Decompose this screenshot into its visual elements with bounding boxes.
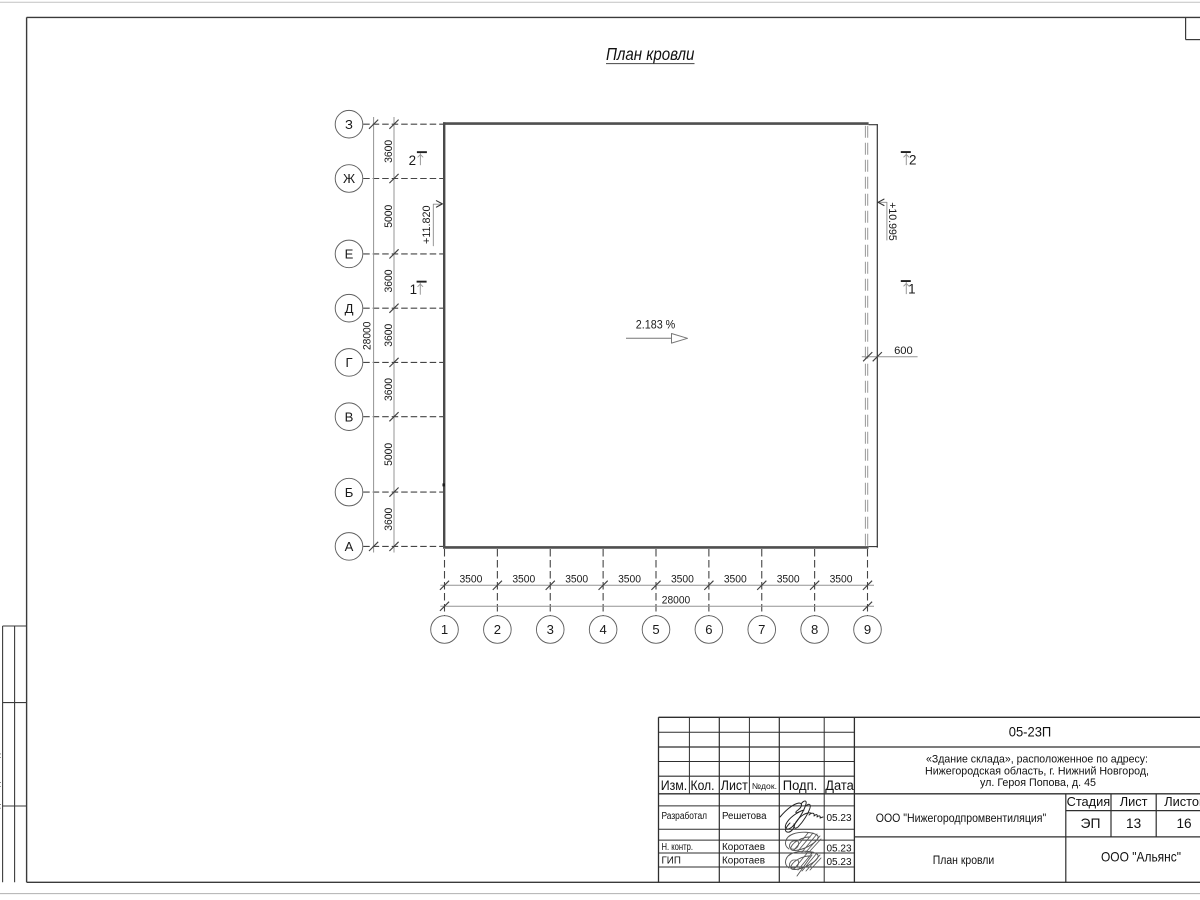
svg-text:Нижегородская область, г. Нижн: Нижегородская область, г. Нижний Новгоро… <box>925 765 1149 777</box>
svg-text:Листов: Листов <box>1164 794 1200 809</box>
svg-text:Подп.: Подп. <box>783 778 818 794</box>
svg-text:3600: 3600 <box>383 270 395 293</box>
svg-text:Лист: Лист <box>1120 794 1148 809</box>
svg-text:Дата: Дата <box>825 778 854 794</box>
svg-text:05.23: 05.23 <box>826 843 851 854</box>
svg-text:3: 3 <box>547 622 554 637</box>
svg-text:Н. контр.: Н. контр. <box>662 842 694 853</box>
svg-text:Изм.: Изм. <box>661 778 688 794</box>
svg-text:3500: 3500 <box>671 574 694 586</box>
svg-text:ГИП: ГИП <box>662 856 681 867</box>
svg-text:План кровли: План кровли <box>933 855 995 867</box>
svg-text:600: 600 <box>894 345 913 357</box>
svg-text:2: 2 <box>409 153 416 168</box>
svg-text:28000: 28000 <box>362 322 374 351</box>
svg-text:3500: 3500 <box>565 574 588 586</box>
svg-text:16: 16 <box>1176 816 1191 831</box>
svg-text:28000: 28000 <box>662 595 691 607</box>
svg-text:1: 1 <box>410 282 417 297</box>
svg-text:А: А <box>345 539 354 554</box>
svg-text:Решетова: Решетова <box>722 811 767 822</box>
svg-text:3600: 3600 <box>383 140 395 163</box>
svg-text:2: 2 <box>494 622 501 637</box>
svg-text:2: 2 <box>909 153 916 168</box>
svg-text:13: 13 <box>1126 816 1141 831</box>
svg-text:05.23: 05.23 <box>826 857 851 868</box>
svg-text:Е: Е <box>345 247 354 262</box>
svg-text:Коротаев: Коротаев <box>722 856 765 867</box>
svg-text:+11.820: +11.820 <box>421 205 433 244</box>
svg-text:5000: 5000 <box>383 443 395 466</box>
svg-text:3500: 3500 <box>512 574 535 586</box>
svg-text:7: 7 <box>758 622 765 637</box>
svg-text:6: 6 <box>705 622 712 637</box>
svg-text:Лист: Лист <box>721 778 748 794</box>
svg-text:Кол.: Кол. <box>691 778 715 794</box>
svg-text:9: 9 <box>864 622 871 637</box>
svg-text:ООО "Нижегородпромвентиляция": ООО "Нижегородпромвентиляция" <box>876 811 1047 825</box>
svg-text:Г: Г <box>345 355 352 370</box>
svg-text:3500: 3500 <box>724 574 747 586</box>
svg-text:2.183 %: 2.183 % <box>636 318 676 332</box>
svg-text:ул. Героя Попова, д. 45: ул. Героя Попова, д. 45 <box>980 777 1096 789</box>
svg-text:3600: 3600 <box>383 378 395 401</box>
svg-text:3500: 3500 <box>618 574 641 586</box>
svg-text:05-23П: 05-23П <box>1009 724 1052 739</box>
svg-text:3500: 3500 <box>459 574 482 586</box>
svg-text:05.23: 05.23 <box>826 813 851 824</box>
svg-text:+10.995: +10.995 <box>886 202 898 241</box>
svg-text:3500: 3500 <box>830 574 853 586</box>
svg-text:1: 1 <box>441 622 448 637</box>
svg-text:№док.: №док. <box>752 781 777 791</box>
svg-text:Инв. № подл.: Инв. № подл. <box>0 798 2 845</box>
svg-text:Стадия: Стадия <box>1067 794 1111 809</box>
svg-text:8: 8 <box>811 622 818 637</box>
svg-text:5: 5 <box>652 622 659 637</box>
svg-text:3600: 3600 <box>383 508 395 531</box>
svg-text:5000: 5000 <box>383 205 395 228</box>
svg-text:Разработал: Разработал <box>662 811 708 822</box>
svg-text:ЭП: ЭП <box>1081 816 1101 831</box>
svg-text:Д: Д <box>345 301 354 316</box>
svg-text:В: В <box>345 409 354 424</box>
svg-text:3500: 3500 <box>777 574 800 586</box>
svg-text:План кровли: План кровли <box>606 44 695 64</box>
svg-text:«Здание склада», расположенное: «Здание склада», расположенное по адресу… <box>926 753 1148 765</box>
svg-text:Ж: Ж <box>343 171 355 186</box>
svg-text:Б: Б <box>345 485 354 500</box>
svg-text:ООО "Альянс": ООО "Альянс" <box>1101 850 1181 865</box>
svg-text:З: З <box>345 117 353 132</box>
svg-text:4: 4 <box>599 622 606 637</box>
svg-text:Подпись и дата: Подпись и дата <box>0 741 2 796</box>
svg-text:1: 1 <box>908 282 915 297</box>
svg-text:3600: 3600 <box>383 324 395 347</box>
svg-text:Коротаев: Коротаев <box>722 842 765 853</box>
